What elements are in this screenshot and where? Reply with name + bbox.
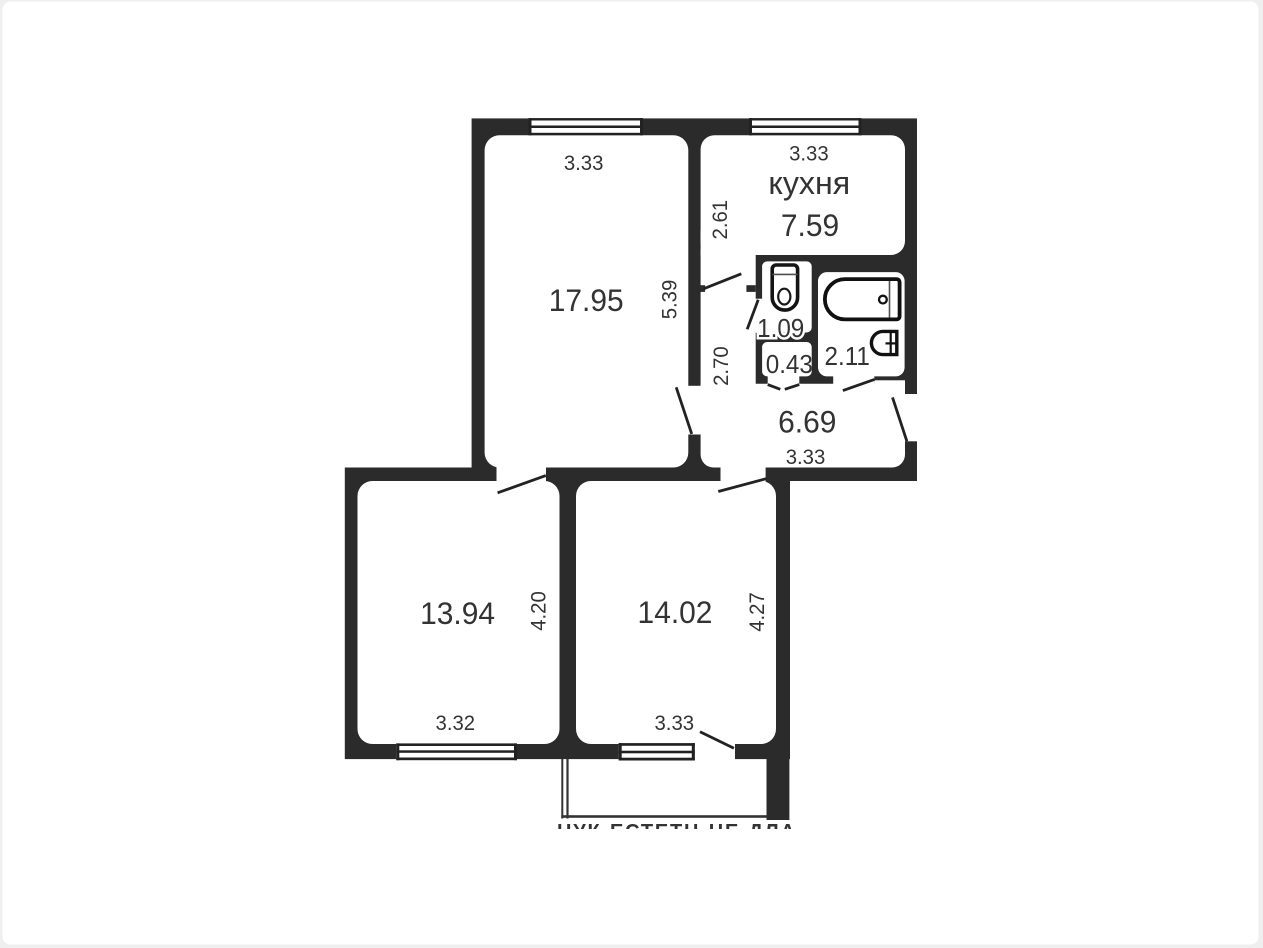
svg-text:3.33: 3.33: [789, 142, 829, 166]
svg-text:1.09: 1.09: [757, 314, 804, 343]
svg-text:4.27: 4.27: [746, 592, 770, 632]
svg-text:2.61: 2.61: [709, 200, 733, 240]
svg-text:2.70: 2.70: [710, 346, 734, 386]
svg-text:13.94: 13.94: [420, 595, 495, 631]
svg-text:7.59: 7.59: [781, 207, 839, 243]
svg-text:3.32: 3.32: [436, 711, 476, 735]
svg-text:17.95: 17.95: [549, 282, 624, 318]
svg-text:0.43: 0.43: [766, 350, 813, 379]
svg-text:4.20: 4.20: [527, 591, 551, 631]
svg-text:3.33: 3.33: [786, 445, 826, 469]
svg-text:6.69: 6.69: [778, 404, 836, 440]
svg-text:5.39: 5.39: [658, 280, 682, 320]
svg-text:кухня: кухня: [768, 165, 850, 201]
svg-text:3.33: 3.33: [655, 711, 695, 735]
svg-text:3.33: 3.33: [564, 151, 604, 175]
svg-text:14.02: 14.02: [638, 594, 713, 630]
svg-text:2.11: 2.11: [825, 342, 870, 371]
